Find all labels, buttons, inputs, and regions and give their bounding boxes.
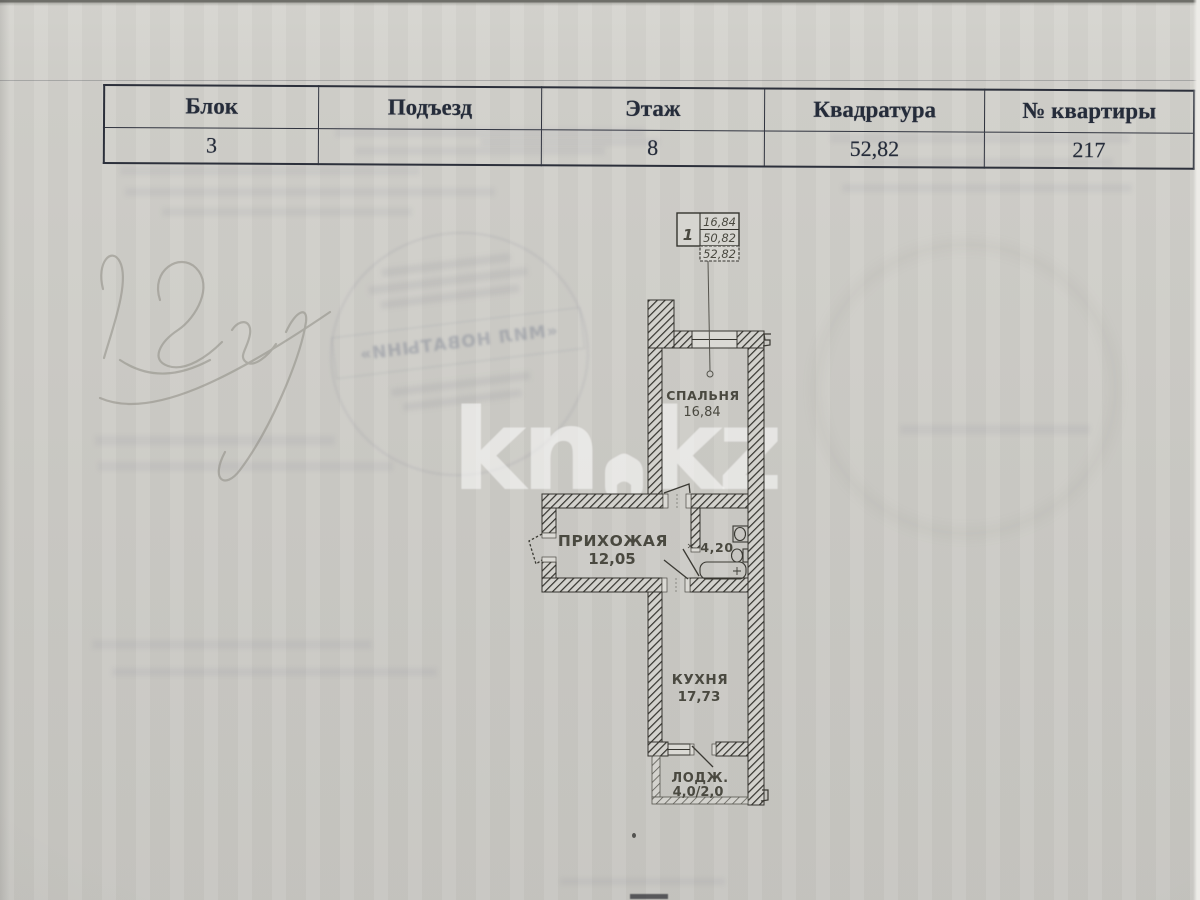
entrance-door-leaf xyxy=(529,534,542,564)
legend-usable-area: 50,82 xyxy=(703,231,736,245)
cut-off-text-fragment xyxy=(630,894,668,899)
room-label-kitchen: КУХНЯ xyxy=(672,672,729,688)
tap-mark xyxy=(733,567,741,575)
room-area-bathroom: 4,20 xyxy=(700,540,733,555)
kitchen-door-leaf xyxy=(664,560,688,579)
photo-left-edge xyxy=(0,0,10,900)
legend-living-area: 16,84 xyxy=(703,215,736,229)
value-block: 3 xyxy=(104,128,319,165)
faint-stamp-shadow xyxy=(812,240,1120,538)
legend-total-area: 52,82 xyxy=(703,247,736,261)
table-header-row: Блок Подъезд Этаж Квадратура № квартиры xyxy=(104,85,1194,133)
legend-unit-number: 1 xyxy=(683,226,693,244)
apartment-info-table: Блок Подъезд Этаж Квадратура № квартиры … xyxy=(103,84,1195,170)
room-label-hallway: ПРИХОЖАЯ xyxy=(558,532,668,550)
door-leaves xyxy=(529,484,713,767)
bathtub xyxy=(700,562,746,579)
header-apt-no: № квартиры xyxy=(985,90,1195,134)
room-area-kitchen: 17,73 xyxy=(678,689,721,705)
photo-right-edge xyxy=(1193,0,1200,900)
header-entrance: Подъезд xyxy=(319,86,542,130)
floor-plan: 1 16,84 50,82 52,82 СПАЛЬНЯ 16,84 ПРИХОЖ… xyxy=(510,195,810,825)
room-label-loggia: ЛОДЖ. xyxy=(671,771,728,786)
balcony-door-leaf xyxy=(692,746,713,767)
ink-speck xyxy=(632,833,636,838)
bedroom-door-leaf xyxy=(664,484,690,493)
opening-centerlines xyxy=(676,494,677,592)
area-legend: 1 16,84 50,82 52,82 xyxy=(677,213,739,377)
toilet-tank xyxy=(743,549,748,562)
header-block: Блок xyxy=(104,85,319,129)
bathroom-door-leaf xyxy=(683,549,699,576)
room-label-bedroom: СПАЛЬНЯ xyxy=(666,388,740,403)
room-area-bedroom: 16,84 xyxy=(683,405,720,420)
photo-top-edge xyxy=(0,0,1200,6)
room-area-loggia: 4,0/2,0 xyxy=(673,785,724,800)
header-floor: Этаж xyxy=(541,87,765,131)
handwritten-signature xyxy=(80,230,360,500)
scanned-document-page: Блок Подъезд Этаж Квадратура № квартиры … xyxy=(0,0,1200,900)
header-area: Квадратура xyxy=(764,88,984,132)
page-rule-line xyxy=(0,80,1200,81)
room-area-hallway: 12,05 xyxy=(588,550,635,568)
